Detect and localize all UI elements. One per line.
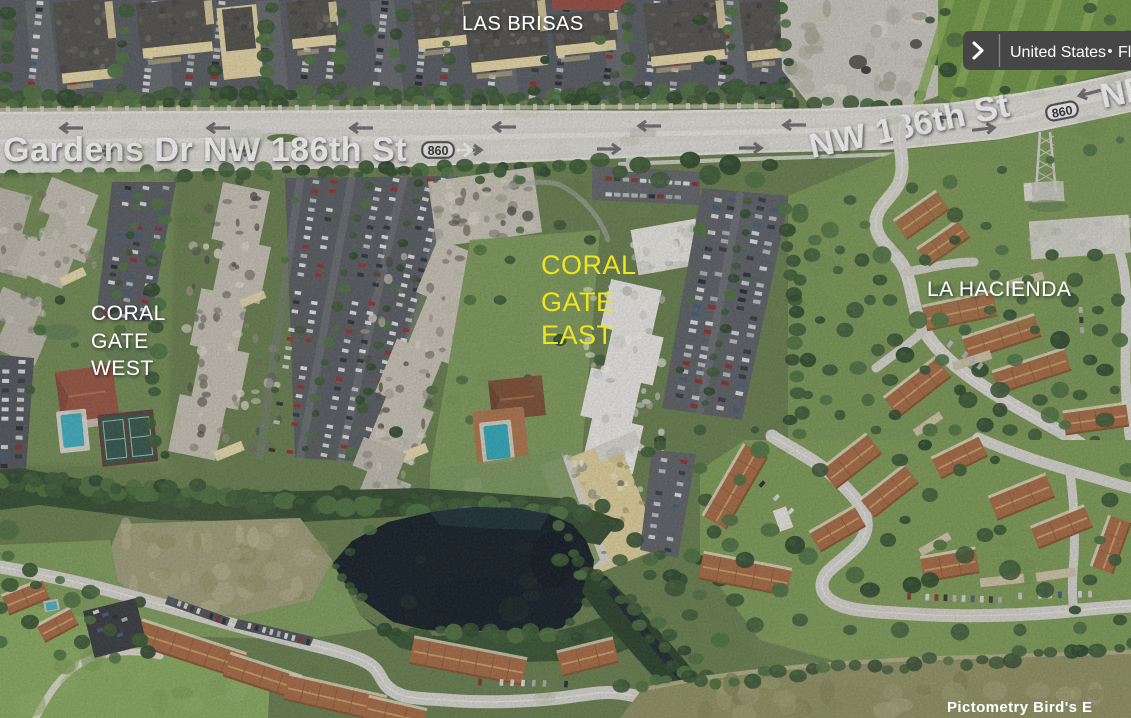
- svg-text:United States: United States: [1010, 44, 1106, 61]
- svg-text:LAS BRISAS: LAS BRISAS: [462, 13, 584, 35]
- svg-text:EAST: EAST: [541, 320, 614, 350]
- svg-text:•: •: [1107, 43, 1112, 60]
- svg-text:GATE: GATE: [91, 330, 149, 353]
- svg-text:Fl: Fl: [1118, 44, 1131, 61]
- svg-text:Pictometry Bird's E: Pictometry Bird's E: [947, 699, 1092, 716]
- svg-text:CORAL: CORAL: [91, 302, 166, 325]
- svg-text:GATE: GATE: [541, 287, 615, 317]
- svg-text:LA HACIENDA: LA HACIENDA: [927, 278, 1071, 301]
- svg-text:CORAL: CORAL: [541, 250, 637, 280]
- svg-text:WEST: WEST: [91, 357, 154, 380]
